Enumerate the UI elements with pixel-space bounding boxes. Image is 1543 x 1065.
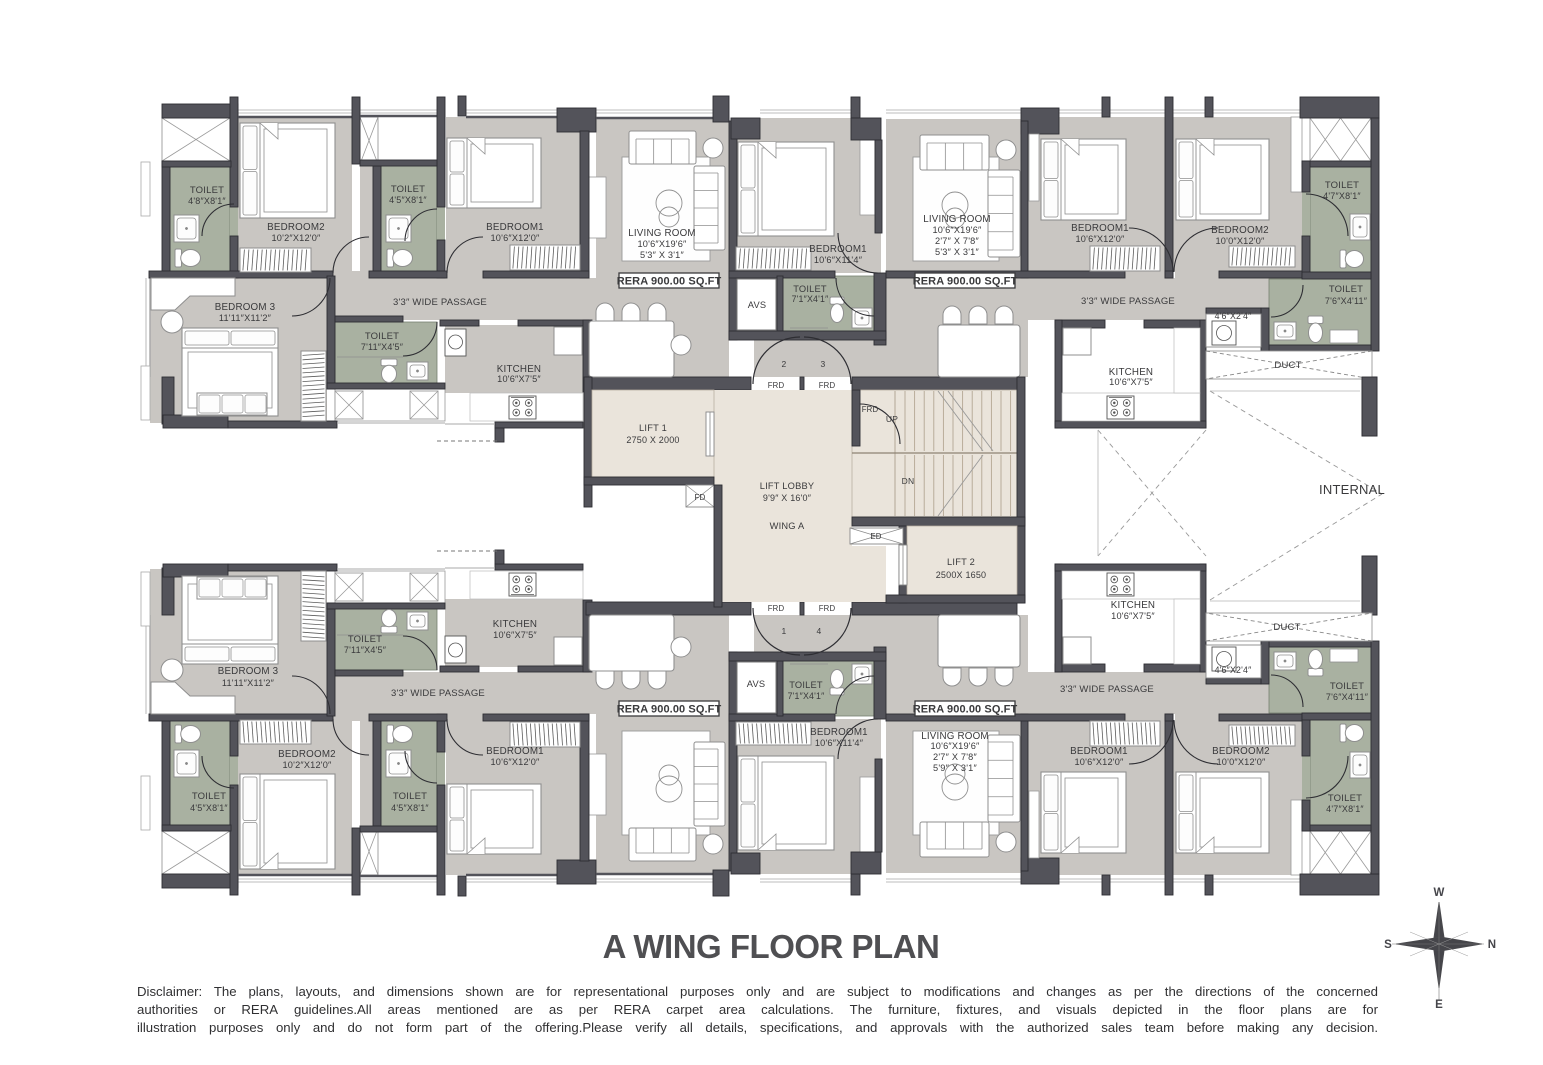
- svg-text:FRD: FRD: [819, 604, 836, 613]
- svg-text:11'11″X11'2″: 11'11″X11'2″: [222, 678, 275, 688]
- svg-text:DUCT: DUCT: [1273, 622, 1300, 633]
- svg-text:BEDROOM1: BEDROOM1: [809, 244, 867, 255]
- svg-text:KITCHEN: KITCHEN: [493, 619, 537, 630]
- svg-text:LIFT LOBBY: LIFT LOBBY: [760, 481, 815, 491]
- svg-text:10'6″X7'5″: 10'6″X7'5″: [493, 630, 537, 640]
- svg-text:TOILET: TOILET: [393, 791, 427, 802]
- svg-text:TOILET: TOILET: [1325, 180, 1359, 191]
- svg-text:S: S: [1384, 939, 1392, 951]
- svg-text:3'3″ WIDE PASSAGE: 3'3″ WIDE PASSAGE: [1060, 684, 1154, 695]
- svg-text:FRD: FRD: [819, 381, 836, 390]
- svg-text:RERA 900.00 SQ.FT: RERA 900.00 SQ.FT: [913, 704, 1018, 716]
- svg-text:4'6″X2'4″: 4'6″X2'4″: [1215, 665, 1252, 675]
- svg-text:7'6″X4'11″: 7'6″X4'11″: [1325, 296, 1368, 306]
- svg-text:2'7″ X 7'8″: 2'7″ X 7'8″: [935, 236, 979, 246]
- svg-text:TOILET: TOILET: [192, 791, 226, 802]
- svg-text:ED: ED: [870, 532, 881, 541]
- svg-text:BEDROOM1: BEDROOM1: [486, 746, 544, 757]
- svg-text:TOILET: TOILET: [1328, 793, 1362, 804]
- svg-text:10'6″X12'0″: 10'6″X12'0″: [491, 757, 541, 767]
- svg-text:BEDROOM1: BEDROOM1: [810, 727, 868, 738]
- svg-text:10'0″X12'0″: 10'0″X12'0″: [1217, 757, 1267, 767]
- svg-text:TOILET: TOILET: [1329, 284, 1363, 295]
- svg-text:RERA 900.00 SQ.FT: RERA 900.00 SQ.FT: [617, 704, 722, 716]
- svg-text:LIVING ROOM: LIVING ROOM: [628, 228, 696, 239]
- svg-text:TOILET: TOILET: [793, 284, 827, 294]
- svg-text:RERA 900.00 SQ.FT: RERA 900.00 SQ.FT: [617, 276, 722, 288]
- svg-text:TOILET: TOILET: [190, 185, 224, 196]
- svg-text:BEDROOM1: BEDROOM1: [1070, 746, 1128, 757]
- svg-text:5'3″ X 3'1″: 5'3″ X 3'1″: [935, 247, 979, 257]
- svg-text:7'1″X4'1″: 7'1″X4'1″: [792, 294, 829, 304]
- svg-text:BEDROOM 3: BEDROOM 3: [218, 666, 279, 677]
- svg-text:7'11″X4'5″: 7'11″X4'5″: [344, 645, 387, 655]
- svg-text:LIVING ROOM: LIVING ROOM: [923, 214, 991, 225]
- svg-text:7'1″X4'1″: 7'1″X4'1″: [788, 691, 825, 701]
- svg-text:4'5″X8'1″: 4'5″X8'1″: [389, 195, 427, 205]
- svg-text:4'5″X8'1″: 4'5″X8'1″: [190, 803, 228, 813]
- svg-text:4'5″X8'1″: 4'5″X8'1″: [391, 803, 429, 813]
- svg-text:10'6″X19'6″: 10'6″X19'6″: [931, 741, 981, 751]
- svg-text:W: W: [1433, 887, 1444, 899]
- svg-text:5'3″ X 3'1″: 5'3″ X 3'1″: [640, 250, 684, 260]
- svg-text:FRD: FRD: [768, 604, 785, 613]
- svg-text:4: 4: [817, 626, 822, 636]
- svg-text:DN: DN: [902, 476, 915, 486]
- svg-text:BEDROOM2: BEDROOM2: [278, 749, 336, 760]
- svg-text:A WING FLOOR PLAN: A WING FLOOR PLAN: [603, 928, 940, 965]
- svg-text:4'7″X8'1″: 4'7″X8'1″: [1326, 804, 1364, 814]
- svg-text:INTERNAL: INTERNAL: [1319, 482, 1385, 497]
- svg-text:TOILET: TOILET: [789, 680, 823, 690]
- svg-text:2'7″ X 7'8″: 2'7″ X 7'8″: [933, 752, 977, 762]
- svg-text:FRD: FRD: [862, 405, 879, 414]
- svg-text:BEDROOM1: BEDROOM1: [1071, 223, 1129, 234]
- svg-text:3: 3: [821, 359, 826, 369]
- svg-text:5'9″ X 3'1″: 5'9″ X 3'1″: [933, 763, 977, 773]
- svg-text:2500X 1650: 2500X 1650: [936, 570, 987, 580]
- svg-text:10'2″X12'0″: 10'2″X12'0″: [283, 760, 333, 770]
- svg-text:E: E: [1435, 999, 1443, 1011]
- svg-text:10'6″X11'4″: 10'6″X11'4″: [815, 738, 864, 748]
- svg-text:3'3″ WIDE PASSAGE: 3'3″ WIDE PASSAGE: [391, 688, 485, 699]
- svg-text:10'2″X12'0″: 10'2″X12'0″: [272, 233, 322, 243]
- svg-text:2750 X 2000: 2750 X 2000: [626, 435, 679, 445]
- svg-text:WING A: WING A: [770, 521, 805, 531]
- svg-text:1: 1: [782, 626, 787, 636]
- svg-text:7'6″X4'11″: 7'6″X4'11″: [1326, 692, 1369, 702]
- svg-text:LIFT 1: LIFT 1: [639, 423, 667, 433]
- svg-text:TOILET: TOILET: [348, 634, 382, 645]
- svg-text:7'11″X4'5″: 7'11″X4'5″: [361, 342, 404, 352]
- svg-text:AVS: AVS: [748, 300, 767, 310]
- svg-text:11'11″X11'2″: 11'11″X11'2″: [219, 313, 272, 323]
- svg-text:FRD: FRD: [768, 381, 785, 390]
- svg-text:10'6″X7'5″: 10'6″X7'5″: [1111, 611, 1155, 621]
- svg-text:RERA 900.00 SQ.FT: RERA 900.00 SQ.FT: [913, 276, 1018, 288]
- svg-text:10'6″X19'6″: 10'6″X19'6″: [638, 239, 688, 249]
- svg-text:AVS: AVS: [747, 679, 766, 689]
- svg-text:BEDROOM2: BEDROOM2: [267, 222, 325, 233]
- svg-text:LIFT 2: LIFT 2: [947, 557, 975, 567]
- svg-text:FD: FD: [694, 493, 705, 502]
- svg-text:10'6″X7'5″: 10'6″X7'5″: [1109, 377, 1153, 387]
- svg-text:BEDROOM2: BEDROOM2: [1212, 746, 1270, 757]
- svg-text:10'6″X12'0″: 10'6″X12'0″: [1076, 234, 1126, 244]
- svg-text:10'6″X12'0″: 10'6″X12'0″: [1075, 757, 1125, 767]
- svg-text:N: N: [1488, 939, 1497, 951]
- svg-text:4'6″X2'4″: 4'6″X2'4″: [1215, 311, 1252, 321]
- svg-text:10'6″X11'4″: 10'6″X11'4″: [814, 255, 863, 265]
- svg-text:10'6″X19'6″: 10'6″X19'6″: [933, 225, 983, 235]
- svg-text:3'3″ WIDE PASSAGE: 3'3″ WIDE PASSAGE: [393, 297, 487, 308]
- svg-text:2: 2: [782, 359, 787, 369]
- svg-text:TOILET: TOILET: [365, 331, 399, 342]
- svg-text:BEDROOM2: BEDROOM2: [1211, 225, 1269, 236]
- svg-text:DUCT: DUCT: [1274, 360, 1301, 371]
- svg-text:BEDROOM 3: BEDROOM 3: [215, 302, 276, 313]
- svg-text:KITCHEN: KITCHEN: [1111, 600, 1155, 611]
- svg-text:10'6″X7'5″: 10'6″X7'5″: [497, 374, 541, 384]
- svg-text:UP: UP: [886, 414, 898, 424]
- svg-text:TOILET: TOILET: [391, 184, 425, 195]
- svg-text:10'6″X12'0″: 10'6″X12'0″: [491, 233, 541, 243]
- svg-text:BEDROOM1: BEDROOM1: [486, 222, 544, 233]
- svg-text:TOILET: TOILET: [1330, 681, 1364, 692]
- svg-text:9'9″ X 16'0″: 9'9″ X 16'0″: [763, 493, 812, 503]
- svg-text:3'3″ WIDE PASSAGE: 3'3″ WIDE PASSAGE: [1081, 296, 1175, 307]
- svg-text:4'8″X8'1″: 4'8″X8'1″: [188, 196, 226, 206]
- svg-text:4'7″X8'1″: 4'7″X8'1″: [1323, 191, 1361, 201]
- svg-text:10'0″X12'0″: 10'0″X12'0″: [1216, 236, 1266, 246]
